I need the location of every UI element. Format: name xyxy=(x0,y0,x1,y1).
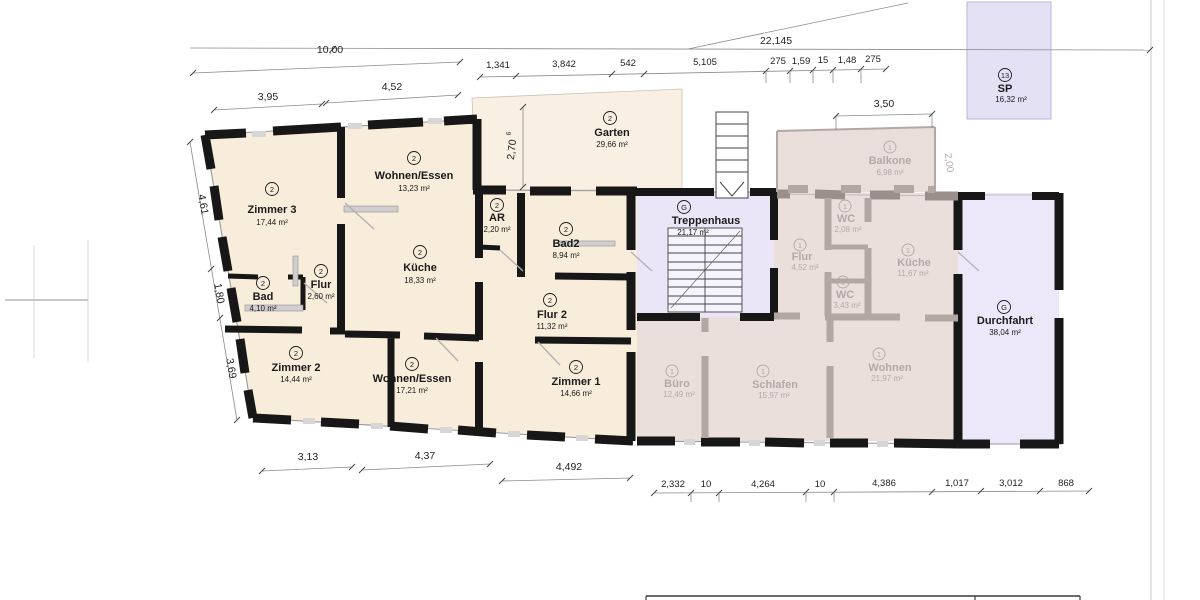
room-area: 38,04 m² xyxy=(989,328,1021,337)
dim-label: 1,59 xyxy=(792,56,811,67)
dimension-balcony-width: 3,50 xyxy=(833,98,935,130)
room-number: G xyxy=(1001,303,1007,312)
dim-label: 1,48 xyxy=(838,55,857,66)
dim-label: 10,00 xyxy=(317,44,343,56)
dim-label: 5,105 xyxy=(693,57,717,68)
exterior-stair xyxy=(716,112,748,198)
room-number: 1 xyxy=(843,202,847,211)
room-area: 6,98 m² xyxy=(876,168,903,177)
room-area: 18,33 m² xyxy=(404,276,436,285)
room-area: 2,60 m² xyxy=(307,292,334,301)
dim-label: 3,012 xyxy=(999,478,1023,489)
room-area: 12,49 m² xyxy=(663,390,695,399)
garden-area xyxy=(472,89,682,190)
room-area: 29,66 m² xyxy=(596,140,628,149)
room-name: Bad xyxy=(253,291,274,303)
dimension-top-left-row: 3,95 4,52 xyxy=(211,81,461,113)
room-name: Flur xyxy=(792,251,813,263)
dim-label: 10 xyxy=(701,479,712,490)
room-area: 2,20 m² xyxy=(483,225,510,234)
room-number: 2 xyxy=(410,360,414,369)
dim-label: 3,95 xyxy=(258,91,279,103)
floor-plan-sheet: 2 Zimmer 3 17,44 m² 2 Wohnen/Essen 13,23… xyxy=(0,0,1200,600)
room-number: 1 xyxy=(670,367,674,376)
dimension-bottom-right-row: 2,332 10 4,264 10 4,386 1,017 3,012 868 xyxy=(651,478,1092,502)
room-name: Wohnen/Essen xyxy=(373,373,452,385)
room-number: 1 xyxy=(888,143,892,152)
dim-label: 2,70 xyxy=(505,139,519,161)
room-number: 2 xyxy=(608,114,612,123)
room-area: 2,08 m² xyxy=(834,225,861,234)
dim-label: 3,842 xyxy=(552,59,576,70)
room-area: 17,21 m² xyxy=(396,386,428,395)
room-number: 1 xyxy=(798,241,802,250)
room-name: Zimmer 1 xyxy=(552,376,601,388)
room-number: 2 xyxy=(418,248,422,257)
staircase xyxy=(668,228,742,312)
room-name: Zimmer 2 xyxy=(272,362,321,374)
room-name: Wohnen/Essen xyxy=(375,170,454,182)
dim-label: 15 xyxy=(818,55,829,66)
room-number: 1 xyxy=(841,278,845,287)
dim-label: 4,264 xyxy=(751,479,775,490)
room-number: 2 xyxy=(412,154,416,163)
room-area: 11,32 m² xyxy=(537,322,568,331)
room-area: 16,32 m² xyxy=(995,95,1027,104)
room-number: 2 xyxy=(319,267,323,276)
room-number: 1 xyxy=(877,350,881,359)
room-number: G xyxy=(681,203,687,212)
dim-label: 3,69 xyxy=(223,357,238,379)
room-name: Küche xyxy=(403,262,437,274)
dim-label: 3,13 xyxy=(298,451,319,463)
room-area: 11,67 m² xyxy=(898,269,929,278)
room-number: 13 xyxy=(1001,71,1009,80)
room-number: 2 xyxy=(270,185,274,194)
room-name: Wohnen xyxy=(868,362,911,374)
dim-label: 868 xyxy=(1058,478,1074,489)
dim-label: 10 xyxy=(815,479,826,490)
dim-label: 4,52 xyxy=(382,81,403,93)
room-area: 21,17 m² xyxy=(677,228,709,237)
room-name: Büro xyxy=(664,378,690,390)
room-area: 8,94 m² xyxy=(552,251,579,260)
room-name: Küche xyxy=(897,257,931,269)
room-area: 15,97 m² xyxy=(758,391,790,400)
room-number: 2 xyxy=(495,201,499,210)
floor-plan-svg: 2 Zimmer 3 17,44 m² 2 Wohnen/Essen 13,23… xyxy=(0,0,1200,600)
dim-label: 275 xyxy=(865,54,881,65)
dim-label: 2,332 xyxy=(661,479,685,490)
room-number: 2 xyxy=(294,349,298,358)
room-name: Durchfahrt xyxy=(977,315,1034,327)
room-name: Schlafen xyxy=(752,379,798,391)
dim-label: 4,492 xyxy=(556,461,582,473)
dim-label: 1,341 xyxy=(486,60,510,71)
room-area: 21,97 m² xyxy=(871,374,903,383)
room-name: Treppenhaus xyxy=(672,215,740,227)
dim-label: 4,386 xyxy=(872,478,896,489)
room-name: WC xyxy=(837,213,855,225)
room-area: 17,44 m² xyxy=(256,218,288,227)
room-name: Bad2 xyxy=(553,238,580,250)
dim-label: 4,61 xyxy=(195,193,210,215)
dim-label: 4,37 xyxy=(415,450,436,462)
dim-label: 1,017 xyxy=(945,478,969,489)
room-area: 4,10 m² xyxy=(249,304,276,313)
room-area: 3,43 m² xyxy=(833,301,860,310)
room-name: WC xyxy=(836,289,854,301)
room-area: 14,66 m² xyxy=(560,389,592,398)
dim-label: 275 xyxy=(770,56,786,67)
dim-label: 1,80 xyxy=(211,282,226,304)
room-number: 1 xyxy=(906,246,910,255)
room-name: Flur 2 xyxy=(537,309,567,321)
room-name: SP xyxy=(998,83,1013,95)
room-name: Zimmer 3 xyxy=(248,204,297,216)
dim-label: 22,145 xyxy=(760,35,792,47)
dim-label: 3,50 xyxy=(874,98,895,110)
room-area: 13,23 m² xyxy=(398,184,430,193)
room-number: 2 xyxy=(564,225,568,234)
dim-label: 542 xyxy=(620,58,636,69)
room-number: 2 xyxy=(574,363,578,372)
dim-balcony-depth: 2,00 xyxy=(942,152,955,173)
room-name: Balkone xyxy=(869,155,912,167)
room-number: 2 xyxy=(548,296,552,305)
room-name: AR xyxy=(489,212,505,224)
room-name: Garten xyxy=(594,127,630,139)
room-area: 14,44 m² xyxy=(280,375,312,384)
dimension-bottom-left-row: 3,13 4,37 4,492 xyxy=(259,450,633,484)
room-area: 4,52 m² xyxy=(791,263,818,272)
dimension-top-right-row: 1,341 3,842 542 5,105 275 1,59 15 1,48 2… xyxy=(477,54,889,83)
title-block-edge xyxy=(646,596,1080,600)
room-number: 1 xyxy=(761,367,765,376)
room-name: Flur xyxy=(311,279,332,291)
room-number: 2 xyxy=(261,279,265,288)
